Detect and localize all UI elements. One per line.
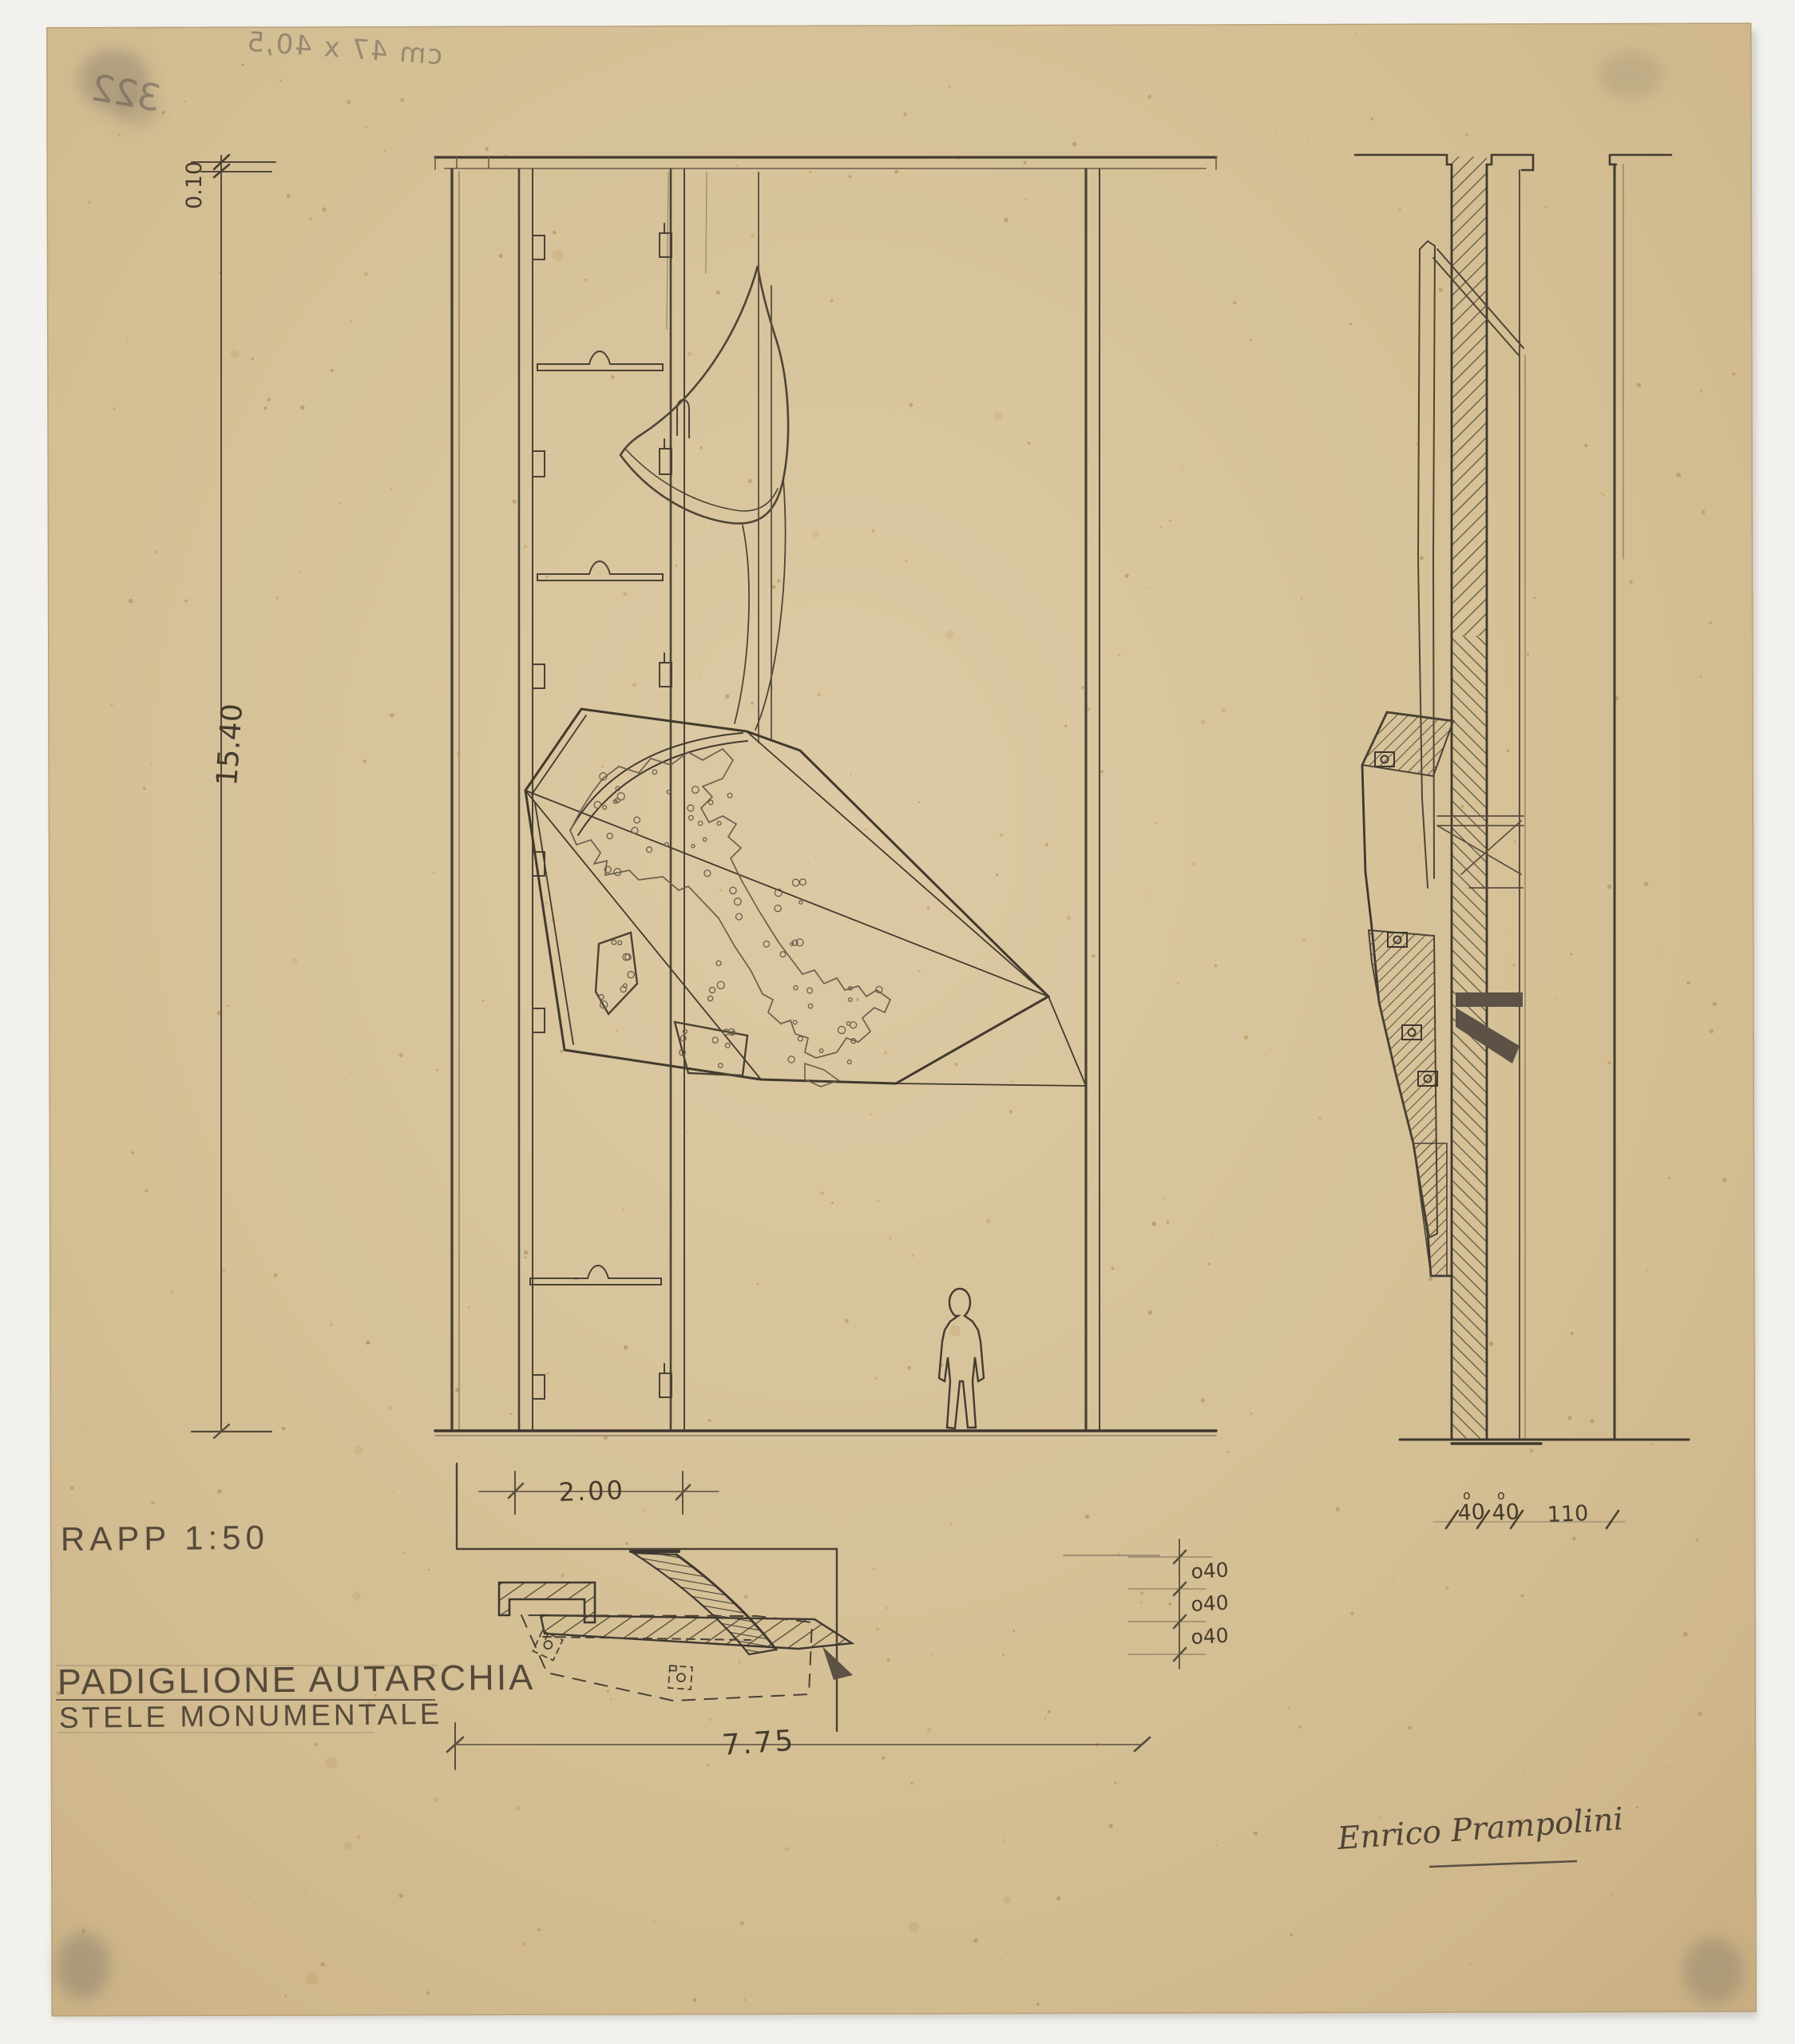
smudge-bottom-right xyxy=(1683,1937,1744,2004)
dim-total-height: 15.40 xyxy=(211,703,249,787)
dim-plan-offset-1: o40 xyxy=(1191,1559,1230,1583)
scanned-drawing-page: cm 47 x 40,5 322 0.10 15.40 2.00 7.75 o4… xyxy=(0,0,1795,2044)
scale-label: RAPP 1:50 xyxy=(61,1519,269,1558)
dim-plan-offset-2: o40 xyxy=(1191,1591,1230,1616)
dim-bay-width: 2.00 xyxy=(558,1475,626,1507)
drawing-canvas: cm 47 x 40,5 322 0.10 15.40 2.00 7.75 o4… xyxy=(0,0,1795,2044)
dark-band-horizontal xyxy=(1456,992,1523,1007)
dim-plan-offset-3: o40 xyxy=(1191,1624,1230,1649)
subtitle-label: STELE MONUMENTALE xyxy=(59,1697,443,1734)
dim-zero-mark-2: o xyxy=(1497,1487,1505,1503)
dim-base-segment-3: 110 xyxy=(1547,1501,1589,1527)
smudge-top-right xyxy=(1599,51,1662,99)
dim-base-segment-1: 40 xyxy=(1457,1499,1486,1526)
dim-zero-mark-1: o xyxy=(1463,1487,1471,1503)
dim-total-width: 7.75 xyxy=(721,1725,797,1762)
dim-top-detail: 0.10 xyxy=(182,161,207,209)
smudge-bottom-left xyxy=(56,1932,110,1999)
dim-base-segment-2: 40 xyxy=(1492,1499,1520,1526)
wall-hatch-upper xyxy=(1452,156,1487,636)
title-label: PADIGLIONE AUTARCHIA xyxy=(57,1657,536,1702)
